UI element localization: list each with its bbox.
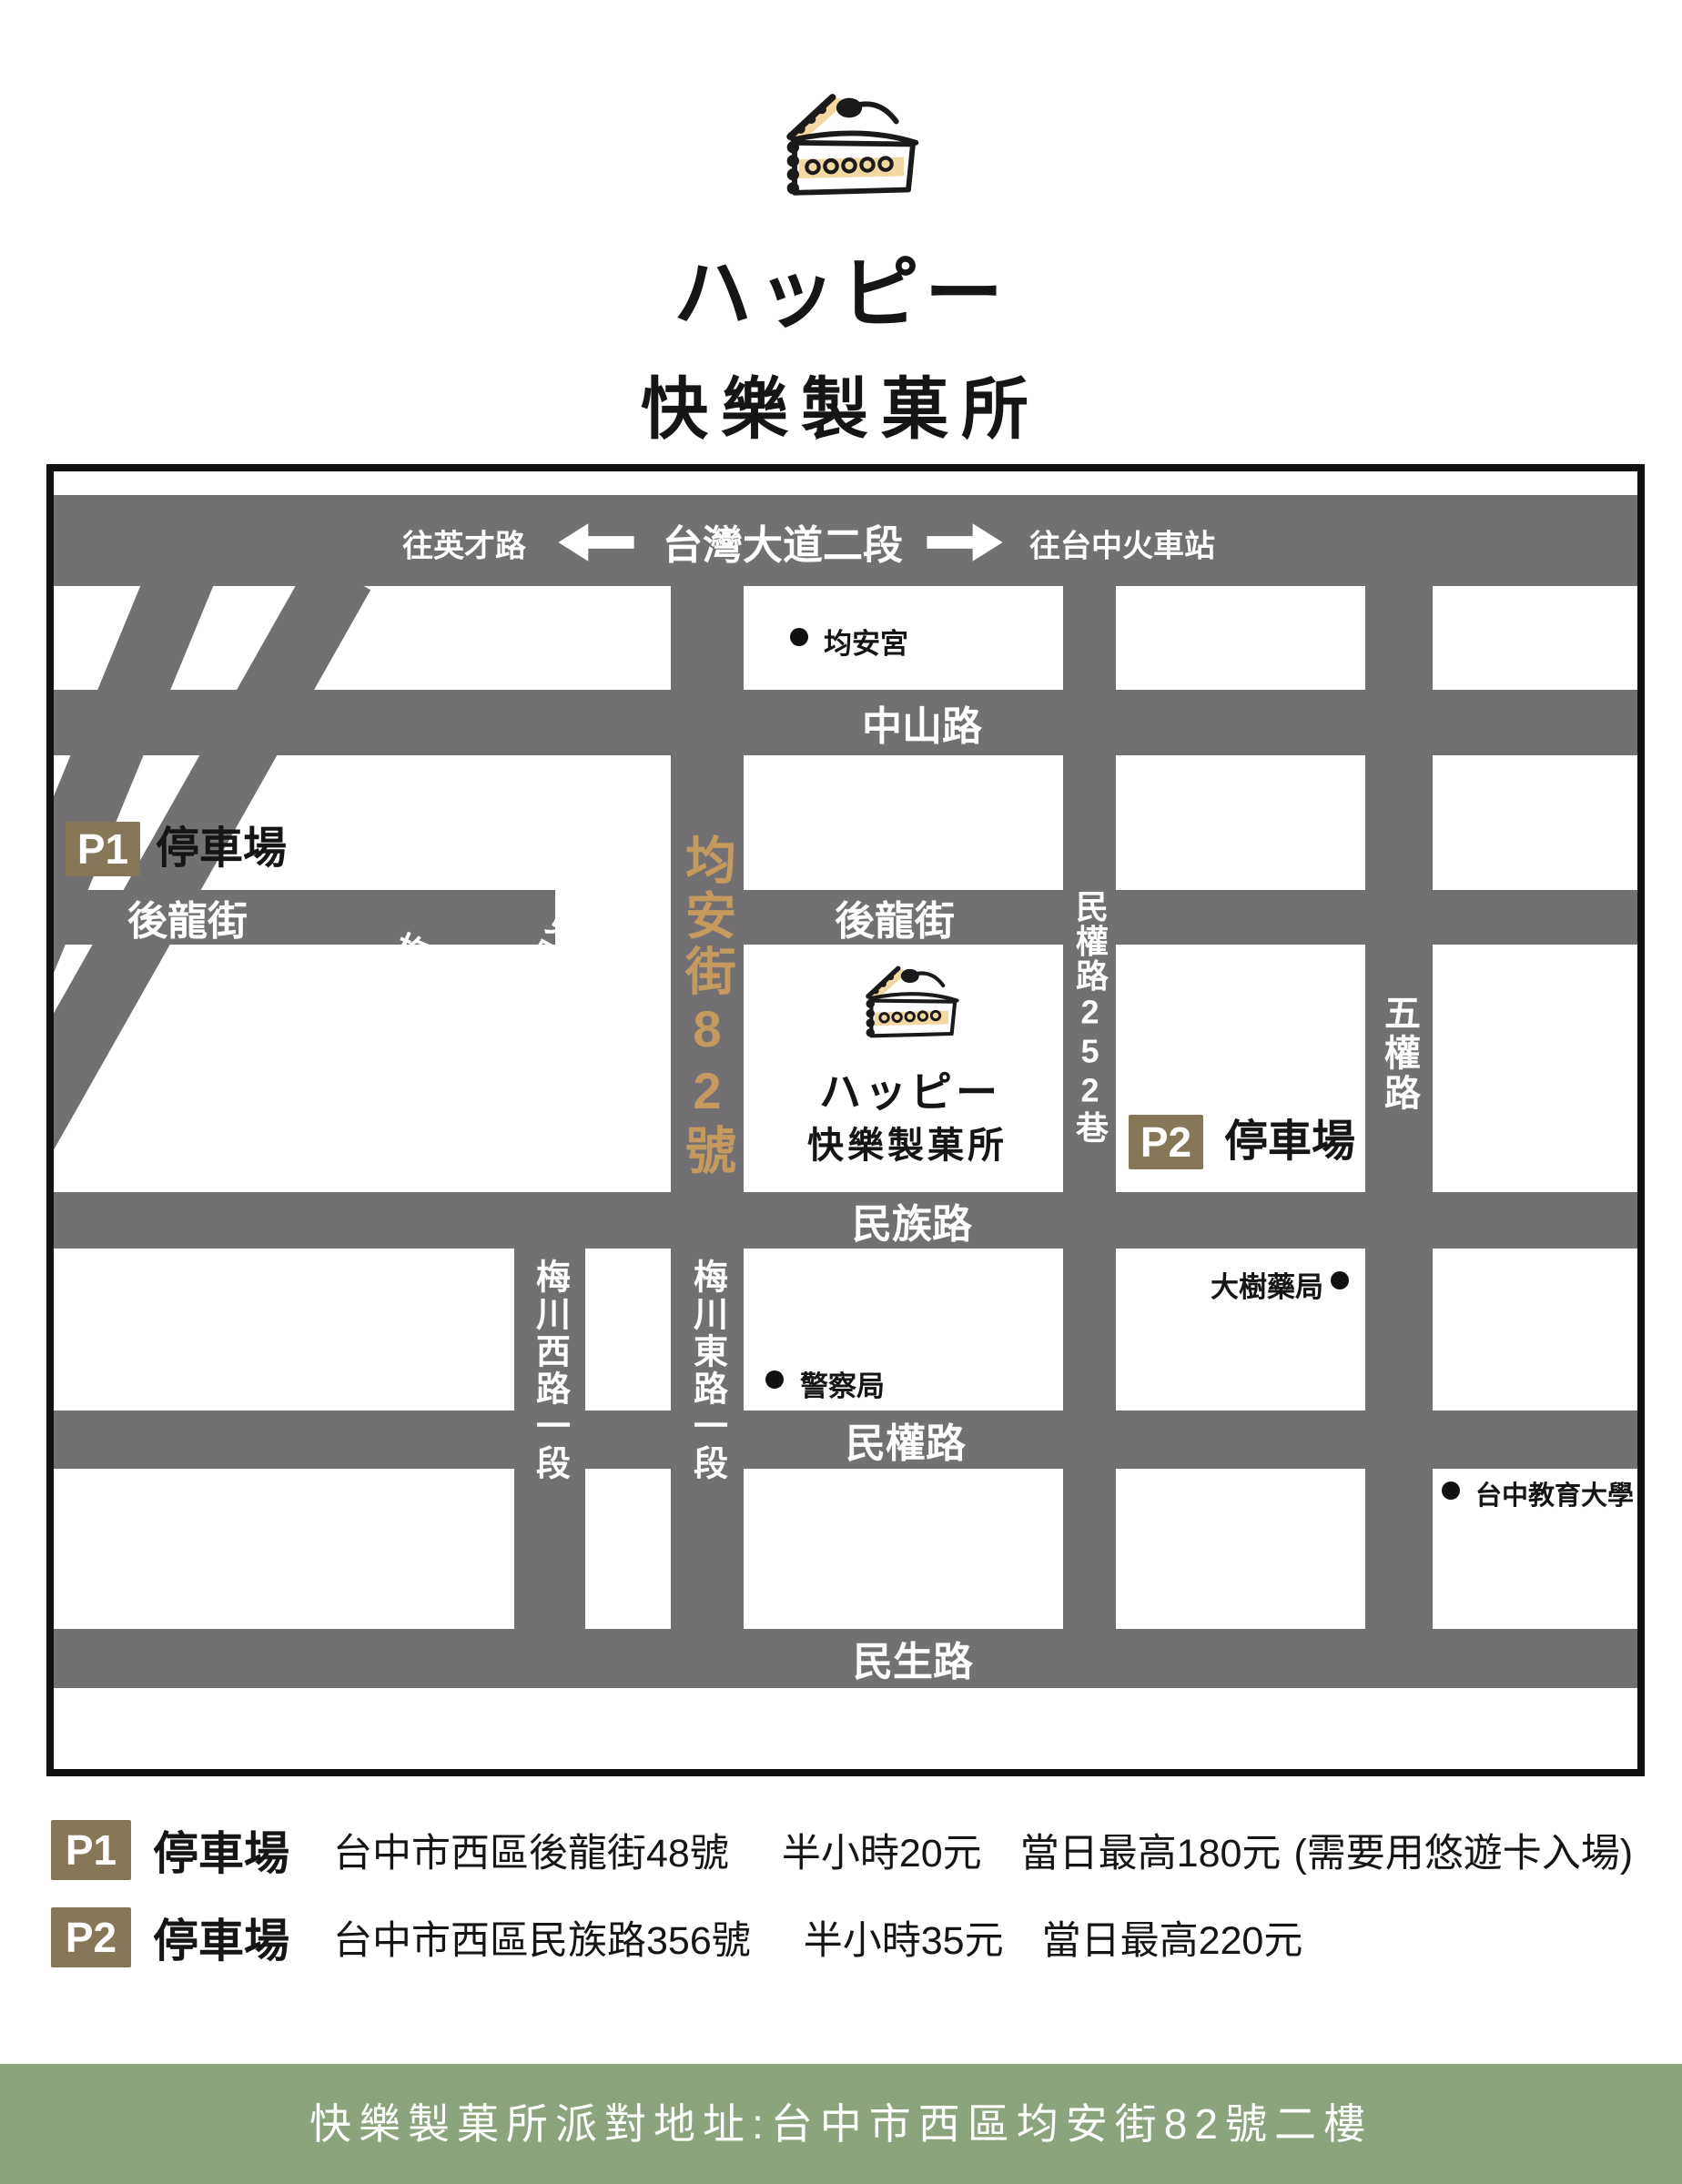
direction-label-yingcai: 往英才路 [402,521,526,566]
road-label-minzu: 民族路 [852,1191,972,1249]
map-panel: 往英才路 台灣大道二段 往台中火車站 中山路 後龍街 後龍街 民族路 民權路 民… [46,464,1645,1776]
p1-map-label: 停車場 [156,822,287,876]
page: ハッピー 快樂製菓所 往英才路 台灣大道二段 往 [0,0,1682,2184]
footer-address: 快樂製菓所派對地址:台中市西區均安街82號二樓 [0,2064,1682,2184]
p2-info-type: 停車場 [153,1905,289,1970]
poi-label-police: 警察局 [800,1363,885,1404]
p2-map-label: 停車場 [1224,1115,1355,1169]
p2-info-rate: 半小時35元 [804,1909,1004,1966]
road-label-wuquan: 五權路 [1373,994,1425,1114]
road-label-houlong-east: 後龍街 [835,888,955,946]
brand-title-jp: ハッピー [0,229,1682,343]
p2-info-daily-max: 當日最高220元 [1042,1909,1303,1966]
road-label-minquan-lane252: 民權路252巷 [1066,890,1113,1146]
p1-info-note: (需要用悠遊卡入場) [1293,1822,1633,1878]
arrow-left-icon [554,519,638,566]
poi-dot-university [1442,1481,1460,1500]
p1-info-badge: P1 [51,1820,131,1880]
parking-info-row-p2: P2 停車場 台中市西區民族路356號 半小時35元 當日最高220元 [51,1906,1633,1969]
cake-logo-icon [767,78,927,224]
road-label-meichuan-west-diagonal: 梅川西路一段 [308,925,440,1150]
parking-info-row-p1: P1 停車場 台中市西區後龍街48號 半小時20元 當日最高180元 (需要用悠… [51,1818,1633,1882]
poi-label-pharmacy: 大樹藥局 [1182,1264,1323,1305]
road-label-junan-gold: 均安街82號 [671,834,745,1179]
arrow-right-icon [923,519,1007,566]
road-label-taiwan-blvd: 台灣大道二段 [663,512,903,571]
road-label-meichuan-west-lower: 梅川西路一段 [525,1259,575,1482]
brand-title-zh: 快樂製菓所 [0,355,1682,452]
road-label-zhongshan: 中山路 [862,693,982,752]
road-label-houlong-west: 後龍街 [127,888,248,946]
p2-map-badge: P2 [1129,1115,1203,1169]
p1-map-badge: P1 [66,822,140,876]
road-label-minquan: 民權路 [846,1410,966,1469]
p1-info-address: 台中市西區後龍街48號 [333,1822,729,1878]
p2-info-badge: P2 [51,1907,131,1967]
poi-dot-junangong [790,628,808,646]
road-houlong-east [671,890,1637,945]
poi-label-junangong: 均安宮 [824,621,908,662]
shop-label-zh: 快樂製菓所 [807,1116,1008,1168]
shop-label-jp: ハッピー [819,1059,1001,1119]
road-label-minsheng: 民生路 [853,1629,973,1687]
p2-info-address: 台中市西區民族路356號 [333,1909,751,1966]
road-label-meichuan-east-lower: 梅川東路一段 [683,1259,733,1482]
shop-cake-icon [850,961,967,1052]
poi-dot-pharmacy [1331,1271,1349,1289]
parking-info-section: P1 停車場 台中市西區後龍街48號 半小時20元 當日最高180元 (需要用悠… [51,1818,1633,1969]
p1-info-type: 停車場 [153,1817,289,1883]
poi-dot-police [765,1370,784,1389]
footer-bar: 快樂製菓所派對地址:台中市西區均安街82號二樓 [0,2064,1682,2184]
p1-info-rate: 半小時20元 [782,1822,982,1878]
direction-label-train-station: 往台中火車站 [1029,521,1215,566]
p1-info-daily-max: 當日最高180元 [1020,1822,1282,1878]
poi-label-university: 台中教育大學 [1475,1474,1634,1512]
